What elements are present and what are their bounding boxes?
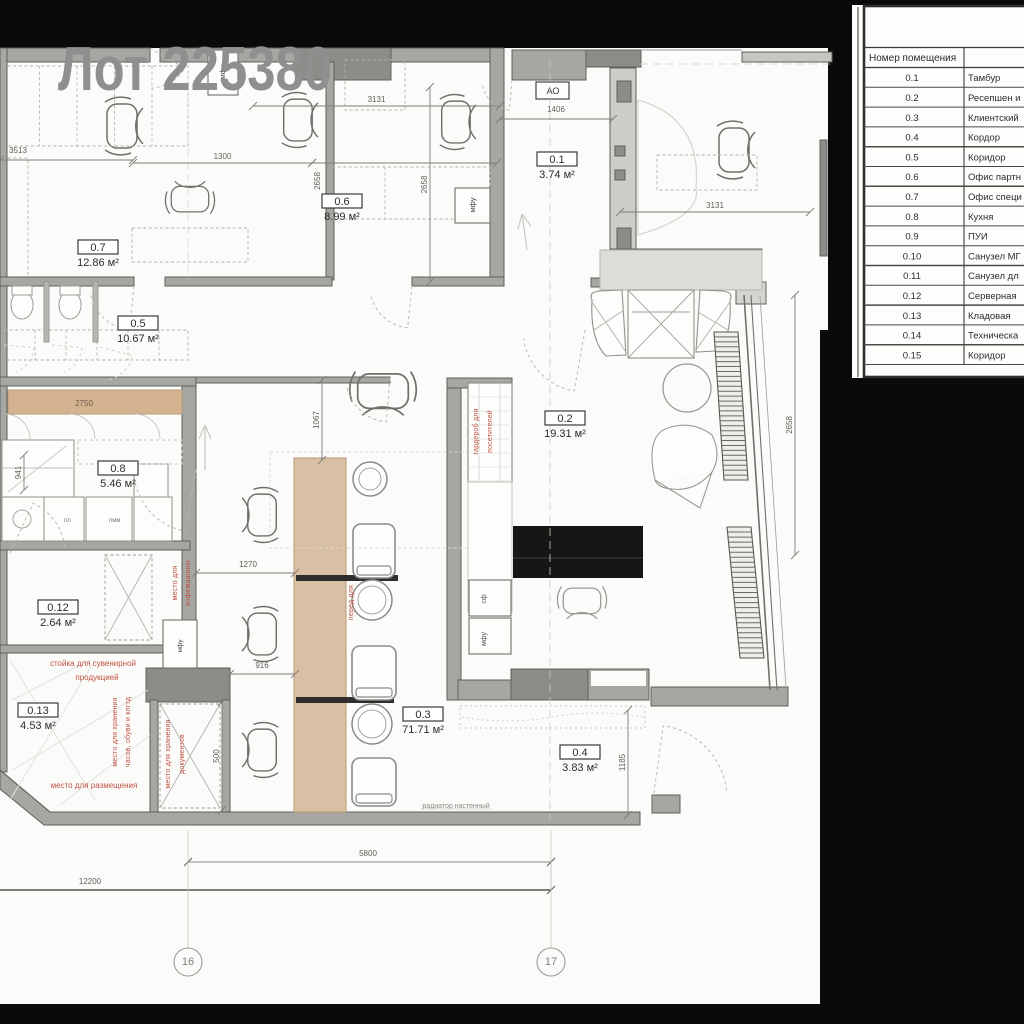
svg-text:0.6: 0.6 <box>334 196 349 208</box>
svg-text:Коридор: Коридор <box>968 350 1006 361</box>
svg-text:12200: 12200 <box>79 877 102 886</box>
svg-text:пмм: пмм <box>109 518 121 524</box>
svg-text:0.7: 0.7 <box>905 192 918 203</box>
svg-text:12.86 м²: 12.86 м² <box>77 257 119 269</box>
svg-text:0.15: 0.15 <box>903 350 922 361</box>
svg-text:2658: 2658 <box>313 172 322 190</box>
svg-text:1185: 1185 <box>618 753 627 771</box>
svg-text:0.10: 0.10 <box>903 251 922 262</box>
svg-text:5.46 м²: 5.46 м² <box>100 478 136 490</box>
svg-text:посетителей: посетителей <box>486 410 494 453</box>
svg-text:3131: 3131 <box>706 201 724 210</box>
svg-text:Номер помещения: Номер помещения <box>869 53 956 64</box>
svg-text:17: 17 <box>545 956 557 968</box>
svg-text:2750: 2750 <box>75 399 93 408</box>
svg-text:0.8: 0.8 <box>110 463 125 475</box>
svg-text:0.3: 0.3 <box>905 113 918 124</box>
svg-text:0.5: 0.5 <box>905 152 918 163</box>
svg-text:место для хранения: место для хранения <box>165 719 172 788</box>
svg-text:500: 500 <box>212 749 221 763</box>
svg-text:Кордор: Кордор <box>968 133 1000 144</box>
svg-text:Офис специ: Офис специ <box>968 192 1022 203</box>
svg-text:перед для: перед для <box>348 585 355 620</box>
svg-text:16: 16 <box>182 956 194 968</box>
svg-text:гардероб для: гардероб для <box>472 408 480 454</box>
svg-text:ПУИ: ПУИ <box>968 232 988 243</box>
svg-text:0.11: 0.11 <box>903 271 921 282</box>
svg-text:0.4: 0.4 <box>572 747 587 759</box>
svg-text:0.3: 0.3 <box>415 709 430 721</box>
svg-text:0.8: 0.8 <box>905 212 918 223</box>
svg-text:941: 941 <box>14 465 23 479</box>
svg-text:4.53 м²: 4.53 м² <box>20 720 56 732</box>
svg-text:0.2: 0.2 <box>905 93 918 104</box>
svg-text:Техническа: Техническа <box>968 331 1019 342</box>
svg-text:1270: 1270 <box>239 560 257 569</box>
svg-text:0.6: 0.6 <box>905 172 918 183</box>
svg-text:Кладовая: Кладовая <box>968 311 1011 322</box>
svg-text:0.1: 0.1 <box>549 154 564 166</box>
svg-text:0.14: 0.14 <box>903 331 922 342</box>
svg-text:0.4: 0.4 <box>905 133 918 144</box>
svg-text:мфу: мфу <box>468 197 477 212</box>
svg-text:Лот 225380: Лот 225380 <box>58 35 332 104</box>
svg-text:Санузел дл: Санузел дл <box>968 271 1019 282</box>
svg-text:3513: 3513 <box>9 146 27 155</box>
svg-text:0.5: 0.5 <box>130 318 145 330</box>
svg-text:0.9: 0.9 <box>905 232 918 243</box>
svg-text:2658: 2658 <box>785 416 794 434</box>
svg-text:19.31 м²: 19.31 м² <box>544 428 586 440</box>
svg-text:0.2: 0.2 <box>557 413 572 425</box>
svg-text:мфу: мфу <box>177 639 184 653</box>
svg-text:Коридор: Коридор <box>968 152 1006 163</box>
svg-text:1406: 1406 <box>547 105 565 114</box>
svg-text:стойка для сувенирной: стойка для сувенирной <box>50 659 136 668</box>
svg-text:продукцией: продукцией <box>75 673 118 682</box>
svg-text:часов, обуви и клгтд: часов, обуви и клгтд <box>124 697 132 767</box>
svg-text:Офис партн: Офис партн <box>968 172 1021 183</box>
svg-text:мфу: мфу <box>481 632 488 646</box>
svg-text:место для размещения: место для размещения <box>51 781 138 790</box>
svg-text:пл: пл <box>64 518 71 524</box>
svg-text:0.7: 0.7 <box>90 242 105 254</box>
svg-text:кофемашины: кофемашины <box>185 560 192 606</box>
svg-text:АО: АО <box>547 86 560 96</box>
svg-text:71.71 м²: 71.71 м² <box>402 724 444 736</box>
svg-text:Тамбур: Тамбур <box>968 73 1000 84</box>
svg-text:5800: 5800 <box>359 849 377 858</box>
svg-text:Ресепшен и: Ресепшен и <box>968 93 1020 104</box>
svg-text:3131: 3131 <box>368 95 386 104</box>
svg-text:2658: 2658 <box>420 175 429 193</box>
svg-text:Санузел МГ: Санузел МГ <box>968 251 1021 262</box>
svg-text:8.99 м²: 8.99 м² <box>324 211 360 223</box>
svg-text:1300: 1300 <box>214 152 232 161</box>
svg-text:документов: документов <box>179 734 186 774</box>
svg-text:0.12: 0.12 <box>47 602 68 614</box>
svg-text:0.12: 0.12 <box>903 291 922 302</box>
svg-text:Серверная: Серверная <box>968 291 1017 302</box>
svg-text:Кухня: Кухня <box>968 212 993 223</box>
svg-text:2.64 м²: 2.64 м² <box>40 617 76 629</box>
svg-text:1067: 1067 <box>312 411 321 429</box>
svg-text:3.74 м²: 3.74 м² <box>539 169 575 181</box>
svg-text:место для хранения: место для хранения <box>112 697 119 766</box>
svg-text:сф: сф <box>481 594 488 604</box>
svg-text:место для: место для <box>172 566 179 601</box>
svg-text:916: 916 <box>255 661 269 670</box>
svg-text:0.13: 0.13 <box>27 705 48 717</box>
svg-text:10.67 м²: 10.67 м² <box>117 333 159 345</box>
svg-text:Клиентский: Клиентский <box>968 113 1019 124</box>
svg-text:3.83 м²: 3.83 м² <box>562 762 598 774</box>
svg-text:0.1: 0.1 <box>905 73 918 84</box>
svg-text:0.13: 0.13 <box>903 311 922 322</box>
